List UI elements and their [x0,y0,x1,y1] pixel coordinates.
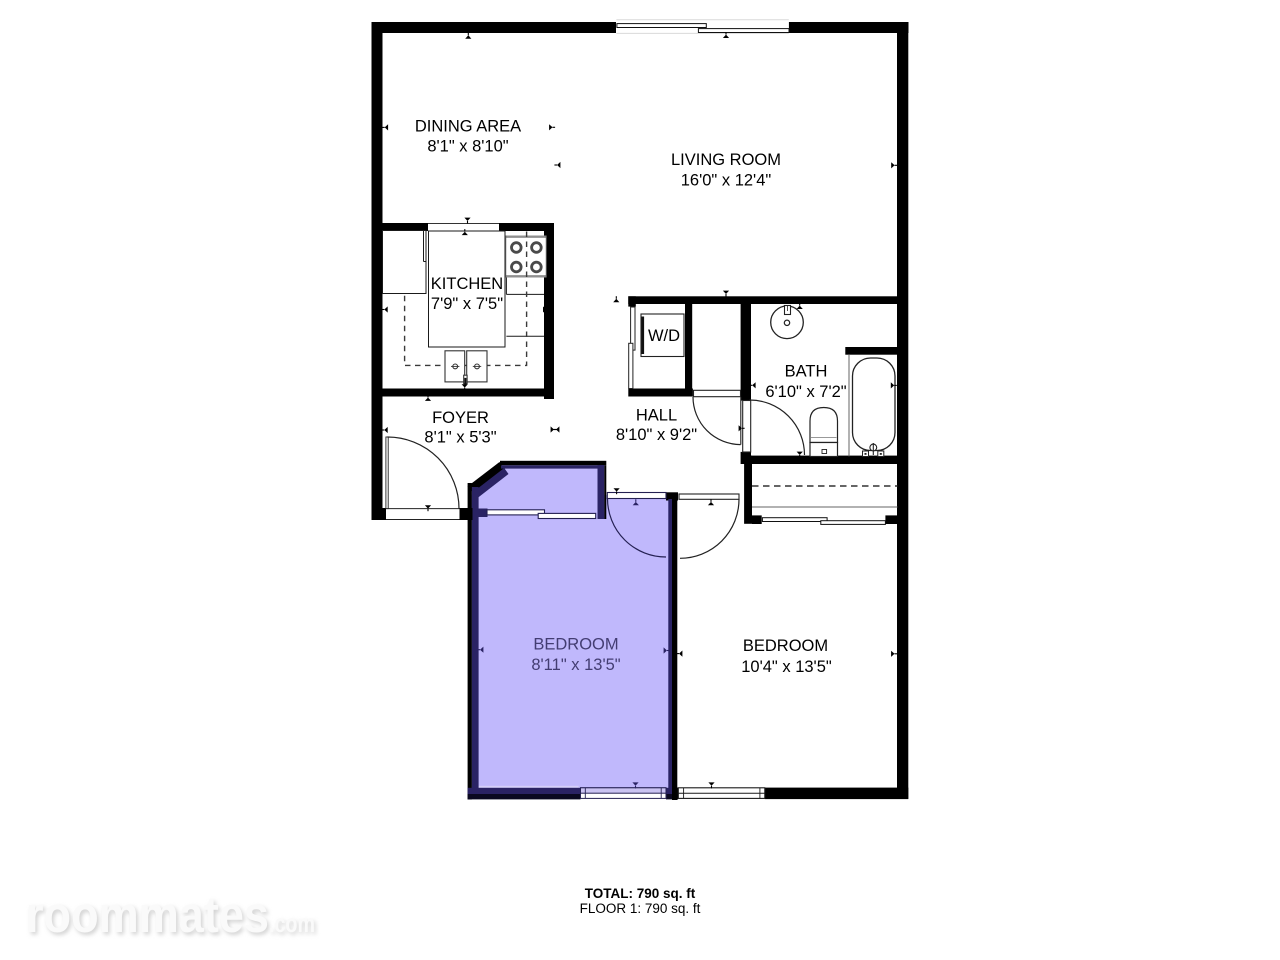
svg-text:8'1" x 5'3": 8'1" x 5'3" [424,429,496,447]
svg-text:7'9" x 7'5": 7'9" x 7'5" [431,295,503,313]
svg-text:HALL: HALL [636,407,677,425]
svg-text:FLOOR 1: 790 sq. ft: FLOOR 1: 790 sq. ft [580,901,701,916]
svg-text:10'4" x 13'5": 10'4" x 13'5" [741,658,832,676]
svg-text:BATH: BATH [785,363,828,381]
svg-text:6'10" x 7'2": 6'10" x 7'2" [765,383,846,401]
svg-text:TOTAL: 790 sq. ft: TOTAL: 790 sq. ft [585,886,696,901]
svg-text:FOYER: FOYER [432,409,489,427]
svg-text:8'10" x 9'2": 8'10" x 9'2" [616,426,697,444]
svg-text:16'0" x 12'4": 16'0" x 12'4" [681,172,772,190]
svg-text:BEDROOM: BEDROOM [743,637,828,655]
svg-text:KITCHEN: KITCHEN [431,275,503,293]
svg-text:DINING AREA: DINING AREA [415,118,521,136]
svg-text:.com: .com [269,908,315,938]
svg-text:BEDROOM: BEDROOM [533,636,618,654]
svg-text:8'1" x 8'10": 8'1" x 8'10" [427,138,508,156]
svg-text:LIVING ROOM: LIVING ROOM [671,151,781,169]
svg-text:8'11" x 13'5": 8'11" x 13'5" [531,656,620,674]
svg-text:roommates: roommates [26,886,269,943]
svg-text:W/D: W/D [648,327,680,345]
